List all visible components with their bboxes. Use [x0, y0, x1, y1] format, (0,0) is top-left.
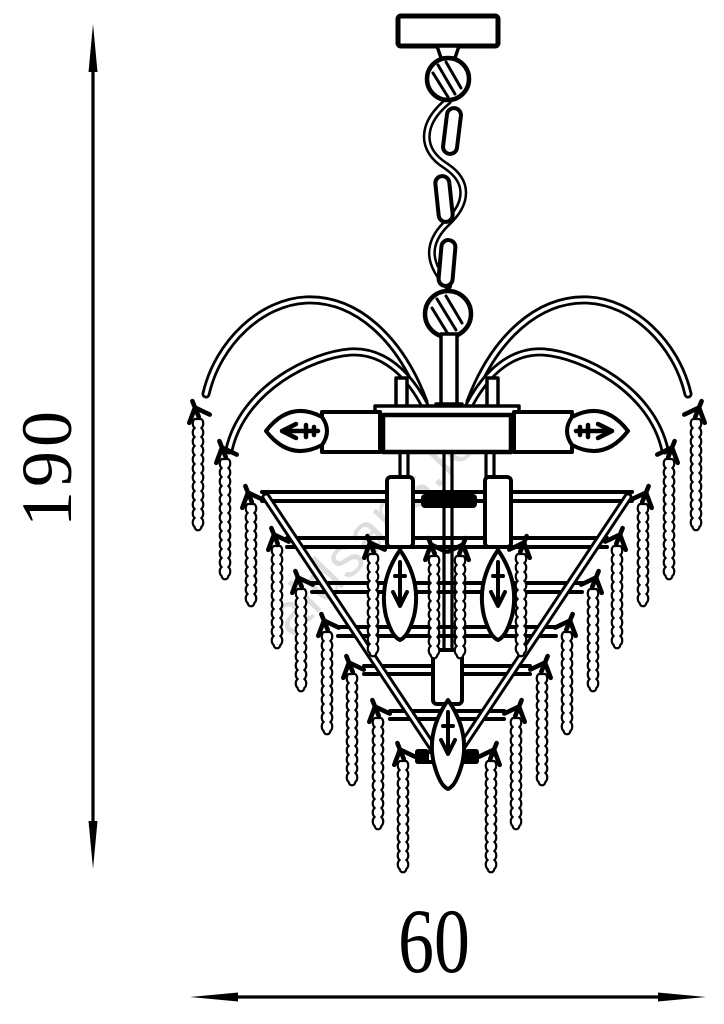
crystal-strand [562, 632, 573, 734]
height-dimension: 190 [7, 24, 98, 869]
ceiling-canopy [398, 16, 498, 46]
chain [425, 107, 471, 337]
crystal-strand [220, 459, 231, 579]
crystal-strand [429, 556, 440, 658]
left-socket [322, 412, 380, 452]
crystal-strand [588, 589, 599, 691]
width-dimension: 60 [190, 889, 706, 1001]
crystal-strand [368, 554, 379, 656]
stem-disc [421, 494, 477, 508]
arm-curve [470, 300, 688, 402]
crystal-strand [691, 419, 702, 530]
chandelier-technical-drawing: aldsans.ie [0, 0, 724, 1024]
crystal-strand [193, 419, 204, 530]
arm-curve-inner [470, 300, 688, 402]
hub-body [383, 415, 511, 452]
ceiling-mount [398, 16, 498, 100]
chain-link [438, 239, 456, 286]
height-value: 190 [7, 407, 87, 527]
crystal-strand [486, 761, 497, 872]
crystal-strand [455, 556, 466, 658]
crystal-strand [537, 674, 548, 785]
stem-top [436, 334, 462, 414]
chandelier-figure [182, 16, 712, 872]
arm-curve [206, 300, 424, 402]
crystal-strand [516, 554, 527, 656]
chain-link [435, 175, 454, 222]
bottom-candle [432, 650, 464, 789]
chain-link [442, 107, 462, 154]
crystal-strand [638, 504, 649, 606]
crystal-strand [373, 718, 384, 829]
crystal-strand [511, 718, 522, 829]
crystal-strand [272, 546, 283, 648]
width-value: 60 [398, 889, 470, 992]
candle-sleeve [485, 477, 511, 547]
arrow-left [190, 993, 238, 1002]
crystal-strand [347, 674, 358, 785]
dimension-drawing-canvas: aldsans.ie [0, 0, 724, 1024]
right-socket [514, 412, 572, 452]
crystal-strand [664, 459, 675, 579]
crystal-strand [398, 761, 409, 872]
arm-curve-inner [206, 300, 424, 402]
arrow-down [89, 821, 98, 869]
arrow-up [89, 24, 98, 72]
crystal-strand [246, 504, 257, 606]
crystal-strand [296, 589, 307, 691]
crystal-strand [612, 546, 623, 648]
arrow-right [658, 993, 706, 1002]
tray-end-block [465, 749, 479, 764]
crystal-strand [322, 632, 333, 734]
tray-end-block [415, 749, 429, 764]
candle-sleeve [387, 477, 413, 547]
